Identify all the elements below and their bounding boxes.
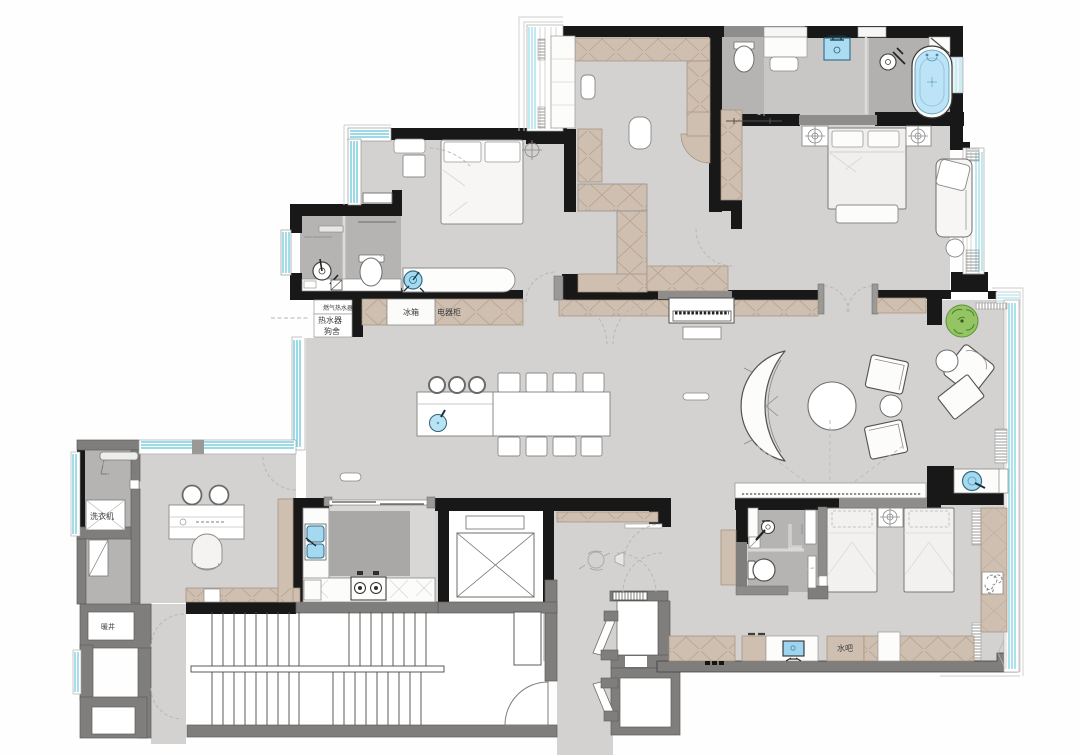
svg-text:热水器: 热水器 <box>318 315 342 325</box>
svg-text:水吧: 水吧 <box>837 643 853 653</box>
svg-text:暖井: 暖井 <box>101 622 115 631</box>
svg-text:电器柜: 电器柜 <box>437 307 461 317</box>
svg-text:燃气热水器: 燃气热水器 <box>323 304 353 312</box>
svg-text:冰箱: 冰箱 <box>403 307 419 317</box>
svg-text:洗衣机: 洗衣机 <box>90 511 114 521</box>
svg-text:狗舍: 狗舍 <box>324 326 340 336</box>
